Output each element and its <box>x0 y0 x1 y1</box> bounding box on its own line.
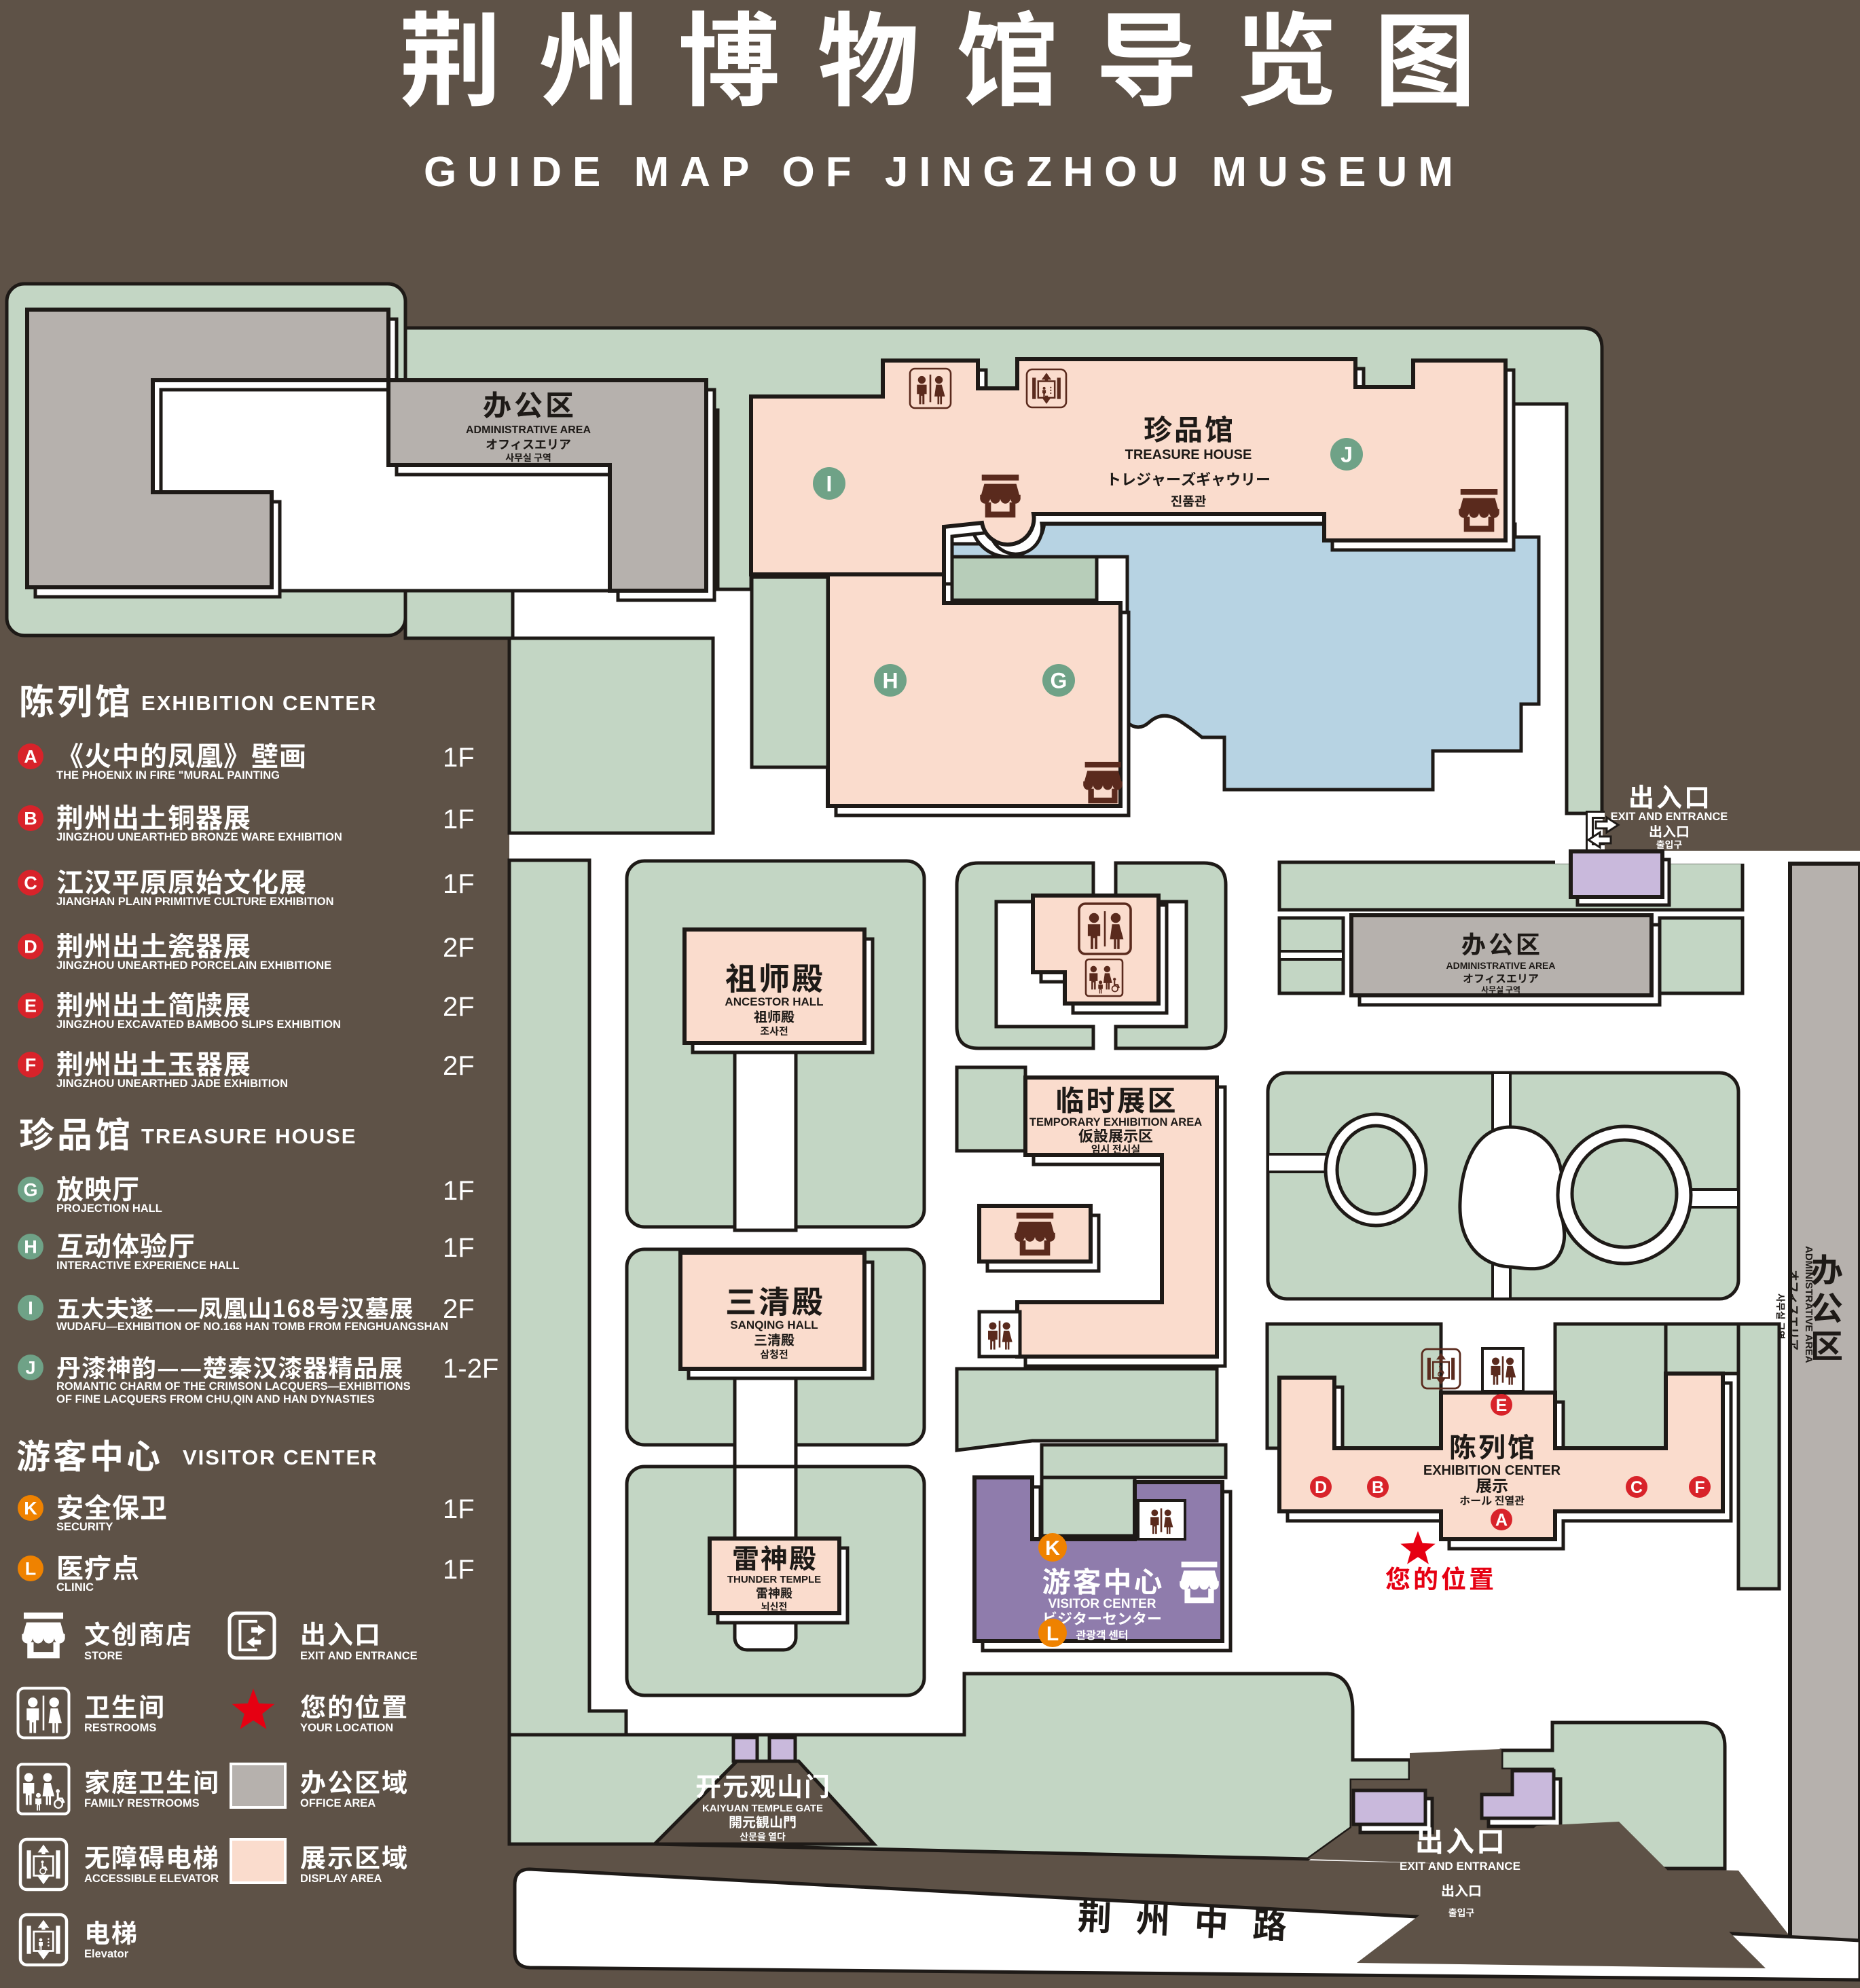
svg-text:EXHIBITION CENTER: EXHIBITION CENTER <box>1423 1463 1561 1478</box>
svg-text:INTERACTIVE EXPERIENCE HALL: INTERACTIVE EXPERIENCE HALL <box>56 1259 240 1272</box>
svg-text:A: A <box>24 747 37 767</box>
svg-text:C: C <box>1630 1478 1643 1497</box>
svg-text:D: D <box>24 937 37 957</box>
svg-text:ACCESSIBLE ELEVATOR: ACCESSIBLE ELEVATOR <box>84 1873 219 1885</box>
svg-text:JINGZHOU UNEARTHED BRONZE WARE: JINGZHOU UNEARTHED BRONZE WARE EXHIBITIO… <box>56 831 342 843</box>
svg-text:EXIT AND ENTRANCE: EXIT AND ENTRANCE <box>1400 1860 1520 1873</box>
svg-text:H: H <box>24 1237 37 1257</box>
svg-text:TREASURE HOUSE: TREASURE HOUSE <box>1125 447 1252 462</box>
svg-text:1F: 1F <box>443 805 475 834</box>
svg-text:FAMILY RESTROOMS: FAMILY RESTROOMS <box>84 1797 200 1809</box>
svg-text:DISPLAY AREA: DISPLAY AREA <box>300 1873 382 1885</box>
svg-text:JINGZHOU UNEARTHED JADE EXHIBI: JINGZHOU UNEARTHED JADE EXHIBITION <box>56 1078 288 1090</box>
svg-text:B: B <box>1372 1478 1384 1497</box>
svg-text:L: L <box>25 1559 37 1579</box>
svg-text:KAIYUAN TEMPLE GATE: KAIYUAN TEMPLE GATE <box>702 1803 823 1814</box>
svg-text:B: B <box>24 809 37 829</box>
svg-text:GUIDE MAP OF JINGZHOU MUSEUM: GUIDE MAP OF JINGZHOU MUSEUM <box>424 149 1464 196</box>
svg-text:1F: 1F <box>443 743 475 773</box>
svg-text:VISITOR CENTER: VISITOR CENTER <box>183 1446 378 1469</box>
svg-text:G: G <box>1051 669 1068 693</box>
svg-text:1F: 1F <box>443 1176 475 1206</box>
svg-text:F: F <box>25 1055 37 1075</box>
svg-text:2F: 2F <box>443 933 475 963</box>
svg-text:JINGZHOU UNEARTHED PORCELAIN E: JINGZHOU UNEARTHED PORCELAIN EXHIBITIONE <box>56 959 331 972</box>
svg-text:1F: 1F <box>443 869 475 899</box>
svg-text:Elevator: Elevator <box>84 1948 129 1960</box>
svg-text:RESTROOMS: RESTROOMS <box>84 1722 156 1734</box>
svg-text:2F: 2F <box>443 1294 475 1324</box>
svg-text:STORE: STORE <box>84 1650 123 1662</box>
svg-text:K: K <box>24 1498 37 1519</box>
svg-text:E: E <box>1496 1396 1508 1415</box>
svg-text:2F: 2F <box>443 1051 475 1081</box>
svg-text:JINGZHOU EXCAVATED BAMBOO SLIP: JINGZHOU EXCAVATED BAMBOO SLIPS EXHIBITI… <box>56 1018 341 1031</box>
svg-text:THE PHOENIX IN FIRE "MURAL PAI: THE PHOENIX IN FIRE "MURAL PAINTING <box>56 769 280 781</box>
svg-text:ROMANTIC CHARM OF THE CRIMSON: ROMANTIC CHARM OF THE CRIMSON LACQUERS—E… <box>56 1380 411 1393</box>
svg-text:C: C <box>24 873 37 894</box>
svg-text:SECURITY: SECURITY <box>56 1521 113 1533</box>
svg-text:2F: 2F <box>443 992 475 1022</box>
svg-text:F: F <box>1694 1478 1704 1497</box>
svg-text:1F: 1F <box>443 1233 475 1263</box>
svg-text:EXIT AND ENTRANCE: EXIT AND ENTRANCE <box>1611 811 1728 823</box>
svg-text:ANCESTOR HALL: ANCESTOR HALL <box>725 995 823 1008</box>
svg-text:K: K <box>1045 1537 1060 1560</box>
svg-text:1F: 1F <box>443 1494 475 1524</box>
svg-text:WUDAFU—EXHIBITION OF NO.168 HA: WUDAFU—EXHIBITION OF NO.168 HAN TOMB FRO… <box>56 1321 448 1333</box>
svg-text:SANQING HALL: SANQING HALL <box>730 1319 818 1331</box>
svg-text:1-2F: 1-2F <box>443 1354 498 1384</box>
svg-text:H: H <box>882 669 898 693</box>
svg-text:G: G <box>23 1180 37 1200</box>
svg-text:J: J <box>25 1358 35 1378</box>
svg-text:L: L <box>1046 1623 1059 1645</box>
svg-text:CLINIC: CLINIC <box>56 1581 94 1594</box>
svg-text:1F: 1F <box>443 1555 475 1585</box>
svg-text:OF FINE LACQUERS FROM CHU,QIN: OF FINE LACQUERS FROM CHU,QIN AND HAN DY… <box>56 1393 375 1405</box>
svg-text:ADMINISTRATIVE AREA: ADMINISTRATIVE AREA <box>466 424 591 436</box>
svg-text:TREASURE HOUSE: TREASURE HOUSE <box>141 1124 357 1148</box>
svg-text:D: D <box>1315 1478 1327 1497</box>
svg-text:ADMINISTRATIVE AREA: ADMINISTRATIVE AREA <box>1803 1246 1815 1363</box>
svg-text:ADMINISTRATIVE AREA: ADMINISTRATIVE AREA <box>1446 960 1556 971</box>
svg-text:J: J <box>1341 443 1353 467</box>
svg-text:EXIT AND ENTRANCE: EXIT AND ENTRANCE <box>300 1650 418 1662</box>
svg-text:VISITOR CENTER: VISITOR CENTER <box>1048 1597 1156 1611</box>
svg-text:A: A <box>1495 1511 1508 1530</box>
svg-text:PROJECTION HALL: PROJECTION HALL <box>56 1202 162 1215</box>
svg-text:THUNDER TEMPLE: THUNDER TEMPLE <box>727 1574 821 1585</box>
svg-text:JIANGHAN PLAIN PRIMITIVE CULTU: JIANGHAN PLAIN PRIMITIVE CULTURE EXHIBIT… <box>56 896 334 908</box>
svg-text:TEMPORARY EXHIBITION AREA: TEMPORARY EXHIBITION AREA <box>1029 1116 1202 1128</box>
svg-text:I: I <box>28 1298 33 1319</box>
svg-text:YOUR LOCATION: YOUR LOCATION <box>300 1722 393 1734</box>
svg-text:OFFICE AREA: OFFICE AREA <box>300 1797 376 1809</box>
svg-text:I: I <box>826 472 833 496</box>
svg-text:E: E <box>24 996 37 1016</box>
svg-text:EXHIBITION CENTER: EXHIBITION CENTER <box>141 691 377 715</box>
